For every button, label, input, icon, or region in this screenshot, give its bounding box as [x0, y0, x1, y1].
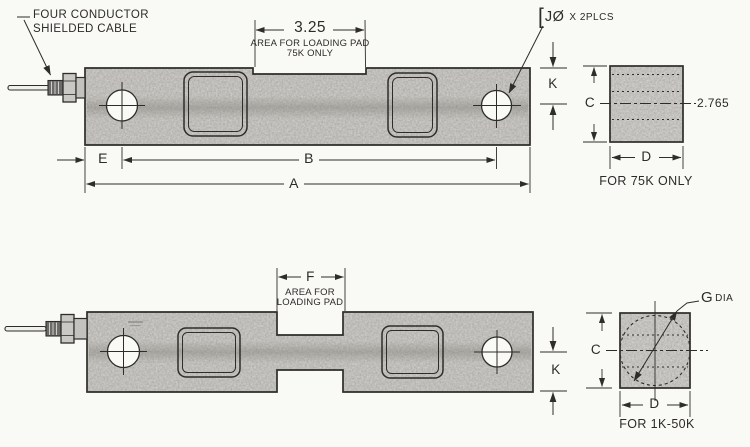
top-pad-note-line1: AREA FOR LOADING PAD [250, 39, 370, 49]
top-dim-letter-k: K [545, 77, 561, 91]
scan-smudge-band [89, 341, 531, 363]
bottom-side-caption: FOR 1K-50K [609, 418, 705, 431]
scan-smudge-band [87, 96, 528, 119]
top-side-dim-letter-c: C [581, 96, 599, 110]
dim-letter-e: E [93, 151, 113, 166]
top-cable-assembly [8, 74, 85, 103]
callout-diameter-letter: JØ [545, 9, 565, 25]
top-side-dim-letter-d: D [638, 150, 655, 164]
callout-places-note: X 2PLCS [569, 12, 614, 23]
bottom-dim-letter-k: K [548, 363, 564, 377]
g-dia-suffix: DIA [715, 293, 733, 304]
drawing-linework [0, 0, 750, 447]
bottom-pad-note-line2: LOADING PAD [272, 298, 348, 308]
bottom-side-dim-letter-c: C [587, 343, 605, 357]
top-pad-note-line2: 75K ONLY [250, 49, 370, 59]
bottom-pad-note-line1: AREA FOR [272, 288, 348, 298]
cable-note-line1: FOUR CONDUCTOR [33, 9, 149, 21]
dim-letter-b: B [299, 151, 319, 166]
g-diameter-callout: G DIA [700, 289, 733, 306]
top-pad-dim-value: 3.25 [257, 20, 363, 36]
cable-note-line2: SHIELDED CABLE [33, 23, 137, 35]
hole-diameter-callout: [ JØ X 2PLCS [538, 7, 614, 27]
top-side-height-value: 2.765 [697, 97, 729, 110]
top-side-caption: FOR 75K ONLY [594, 175, 698, 188]
dim-letter-a: A [284, 176, 304, 191]
callout-bracket: [ [538, 7, 544, 28]
loadcell-drawing-sheet: FOUR CONDUCTOR SHIELDED CABLE 3.25 AREA … [0, 0, 750, 447]
g-dim-letter: G [701, 289, 713, 306]
bottom-side-dim-letter-d: D [646, 397, 663, 411]
bottom-pad-dim-letter-f: F [302, 270, 319, 284]
bottom-cable-assembly [5, 315, 87, 344]
